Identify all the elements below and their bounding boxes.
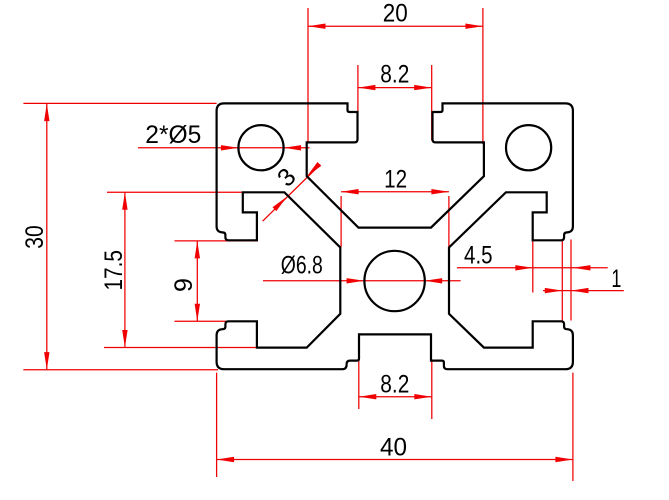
- svg-text:17.5: 17.5: [100, 250, 128, 291]
- svg-text:20: 20: [383, 0, 408, 28]
- svg-text:12: 12: [384, 166, 407, 194]
- svg-text:1: 1: [611, 265, 621, 293]
- svg-text:4.5: 4.5: [464, 242, 493, 270]
- svg-text:8.2: 8.2: [380, 371, 409, 399]
- svg-text:30: 30: [21, 225, 49, 249]
- svg-text:8.2: 8.2: [380, 61, 409, 89]
- svg-text:Ø6.8: Ø6.8: [281, 252, 323, 280]
- svg-text:40: 40: [380, 434, 407, 462]
- svg-text:2*Ø5: 2*Ø5: [145, 121, 201, 149]
- svg-text:9: 9: [170, 278, 198, 292]
